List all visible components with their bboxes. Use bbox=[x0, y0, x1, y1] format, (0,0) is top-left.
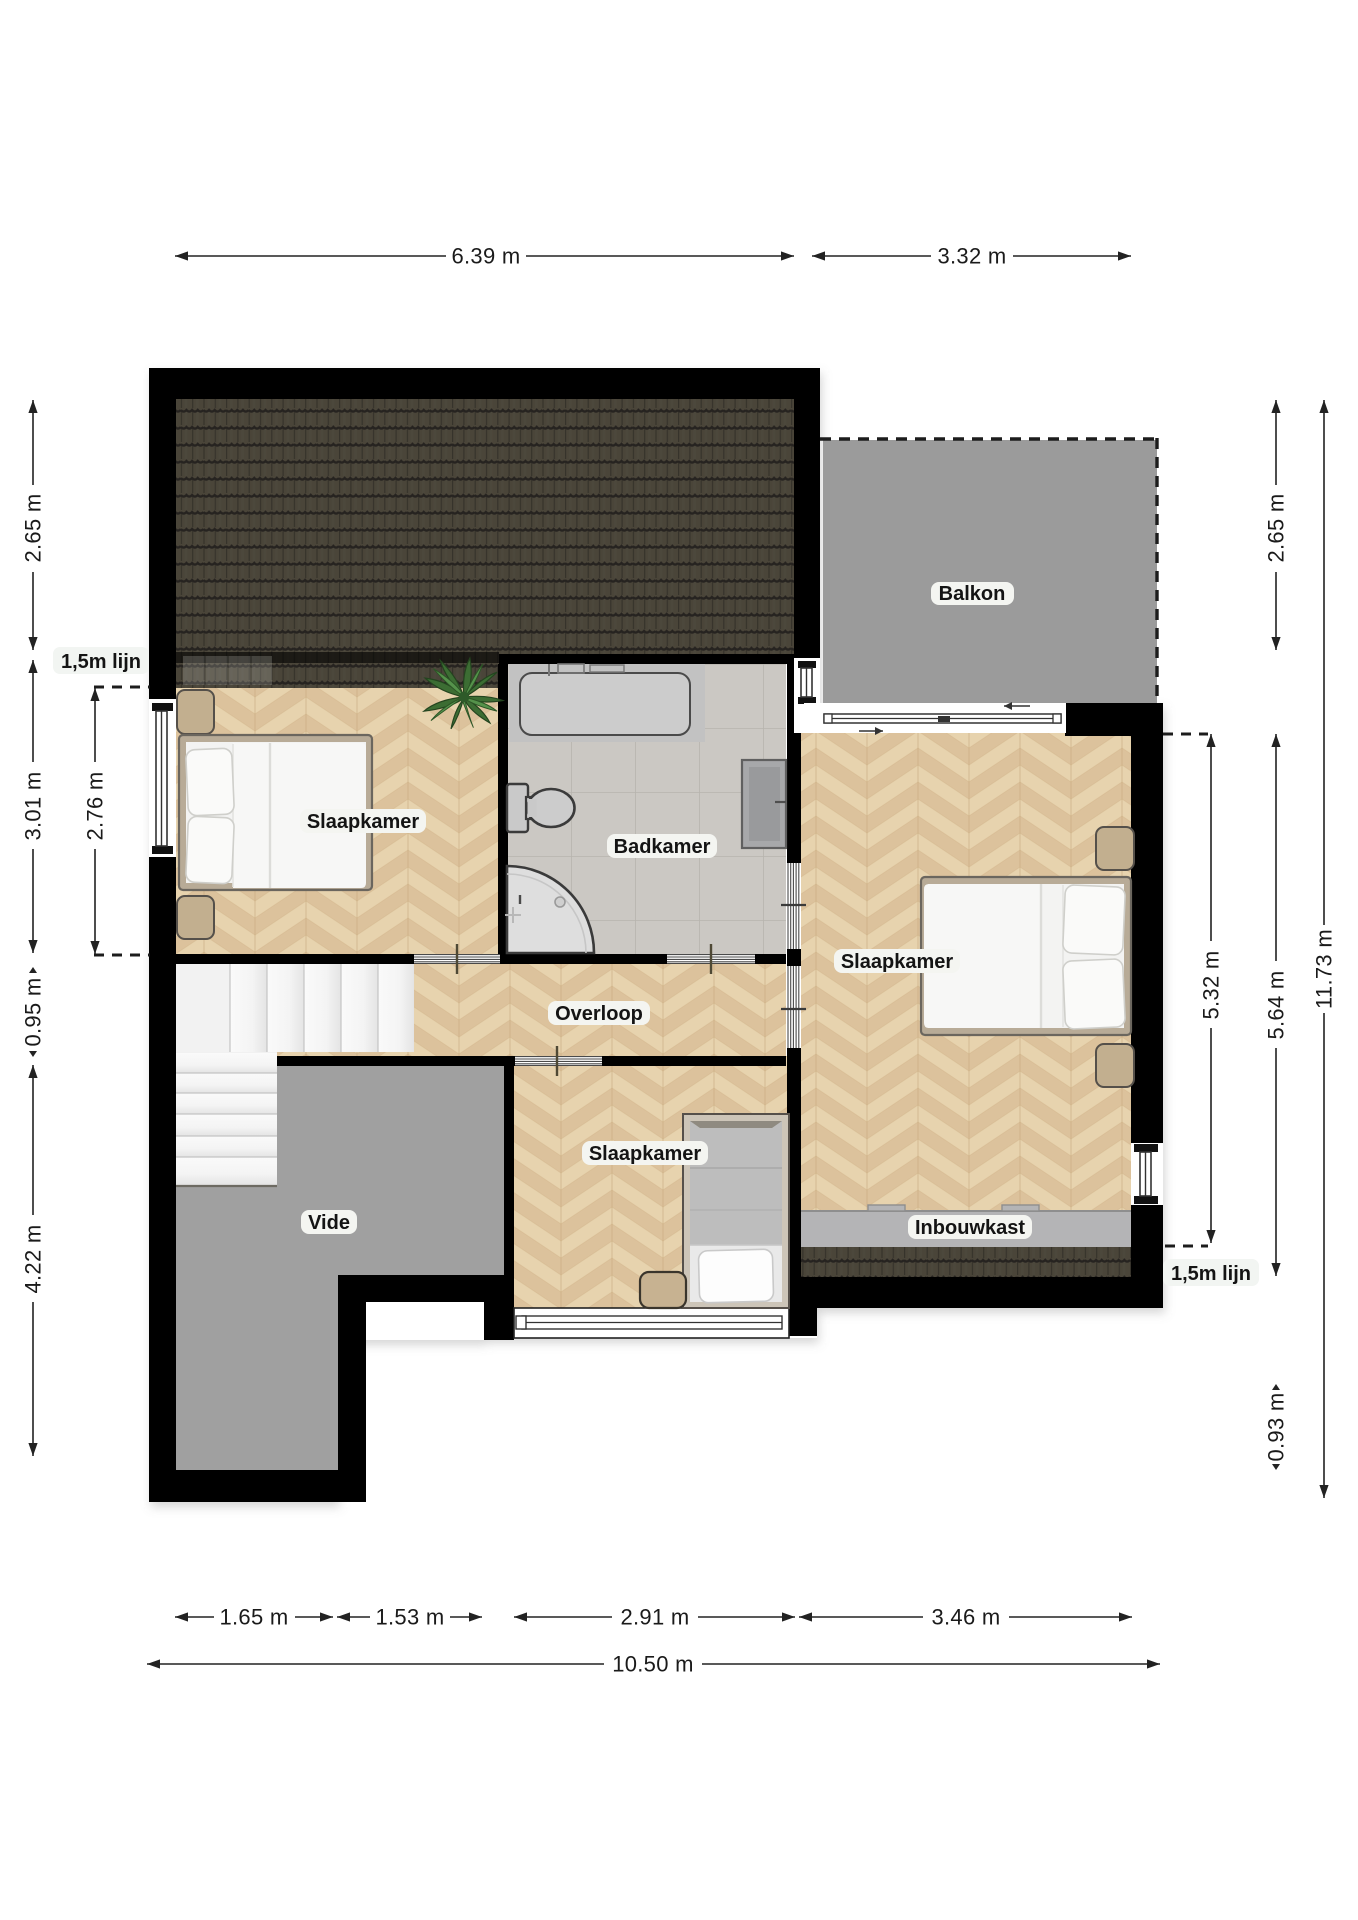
svg-text:Inbouwkast: Inbouwkast bbox=[915, 1217, 1025, 1239]
svg-text:2.65 m: 2.65 m bbox=[21, 493, 46, 562]
svg-text:2.91 m: 2.91 m bbox=[620, 1605, 689, 1630]
svg-text:5.32 m: 5.32 m bbox=[1199, 950, 1224, 1019]
svg-text:1,5m lijn: 1,5m lijn bbox=[1171, 1263, 1251, 1285]
svg-text:10.50 m: 10.50 m bbox=[612, 1652, 694, 1677]
svg-text:Vide: Vide bbox=[308, 1212, 350, 1234]
svg-text:Balkon: Balkon bbox=[939, 583, 1006, 605]
svg-text:Overloop: Overloop bbox=[555, 1003, 643, 1025]
svg-text:1.53 m: 1.53 m bbox=[375, 1605, 444, 1630]
svg-text:3.32 m: 3.32 m bbox=[937, 244, 1006, 269]
svg-text:4.22 m: 4.22 m bbox=[21, 1224, 46, 1293]
svg-text:6.39 m: 6.39 m bbox=[451, 244, 520, 269]
svg-text:11.73 m: 11.73 m bbox=[1312, 929, 1337, 1009]
svg-text:Slaapkamer: Slaapkamer bbox=[307, 811, 420, 833]
svg-text:2.76 m: 2.76 m bbox=[83, 771, 108, 840]
svg-text:0.95 m: 0.95 m bbox=[21, 977, 46, 1046]
svg-text:Badkamer: Badkamer bbox=[614, 836, 711, 858]
svg-text:0.93 m: 0.93 m bbox=[1264, 1392, 1289, 1461]
svg-text:3.01 m: 3.01 m bbox=[21, 771, 46, 840]
svg-text:1,5m lijn: 1,5m lijn bbox=[61, 651, 141, 673]
svg-text:1.65 m: 1.65 m bbox=[219, 1605, 288, 1630]
svg-text:Slaapkamer: Slaapkamer bbox=[841, 951, 954, 973]
svg-text:Slaapkamer: Slaapkamer bbox=[589, 1143, 702, 1165]
svg-text:3.46 m: 3.46 m bbox=[931, 1605, 1000, 1630]
svg-text:2.65 m: 2.65 m bbox=[1264, 493, 1289, 562]
svg-text:5.64 m: 5.64 m bbox=[1264, 970, 1289, 1039]
